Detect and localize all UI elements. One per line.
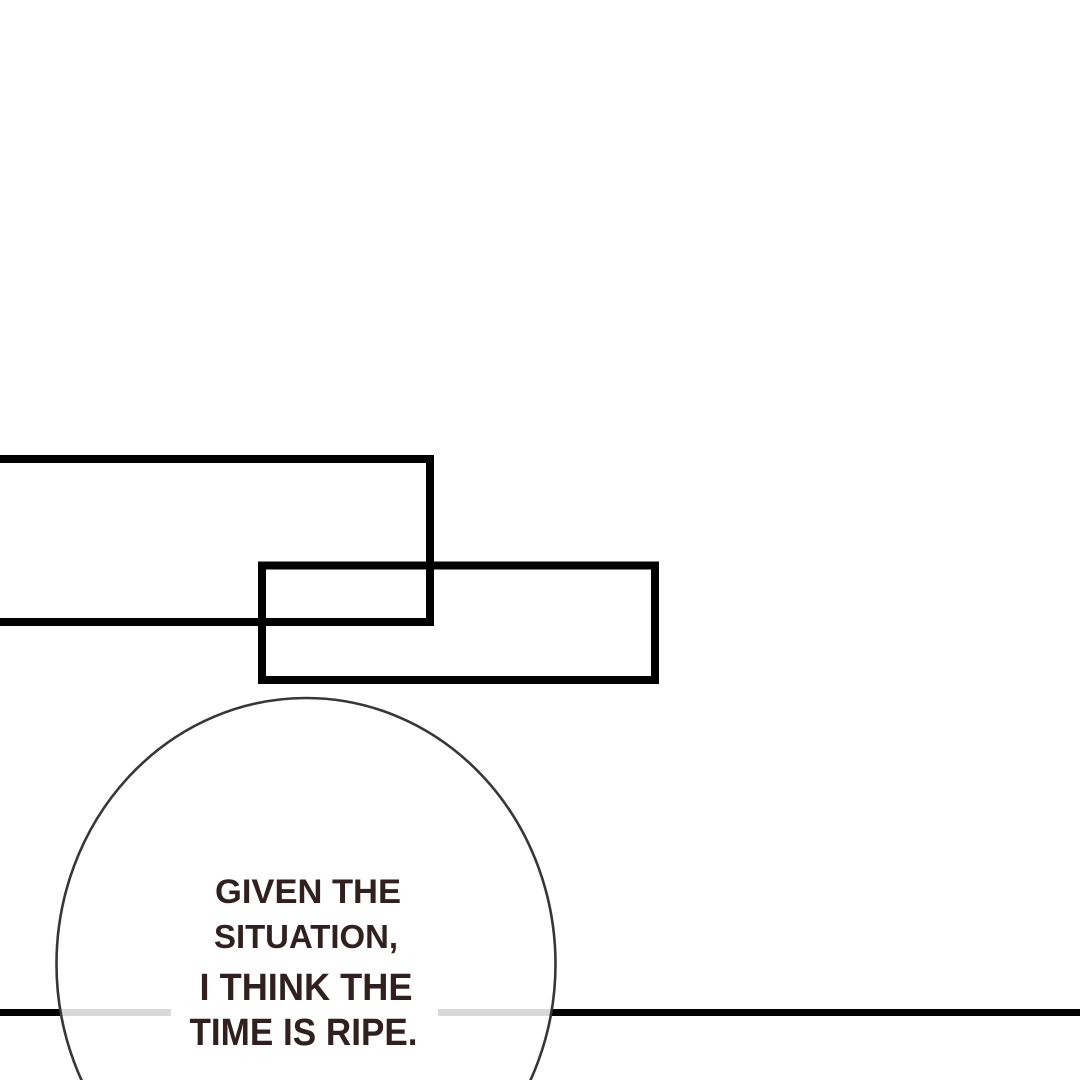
svg-text:GIVEN THE: GIVEN THE: [215, 873, 401, 911]
svg-text:TIME IS RIPE.: TIME IS RIPE.: [190, 1012, 418, 1054]
svg-text:I THINK THE: I THINK THE: [200, 967, 413, 1009]
svg-text:SITUATION,: SITUATION,: [214, 918, 398, 955]
